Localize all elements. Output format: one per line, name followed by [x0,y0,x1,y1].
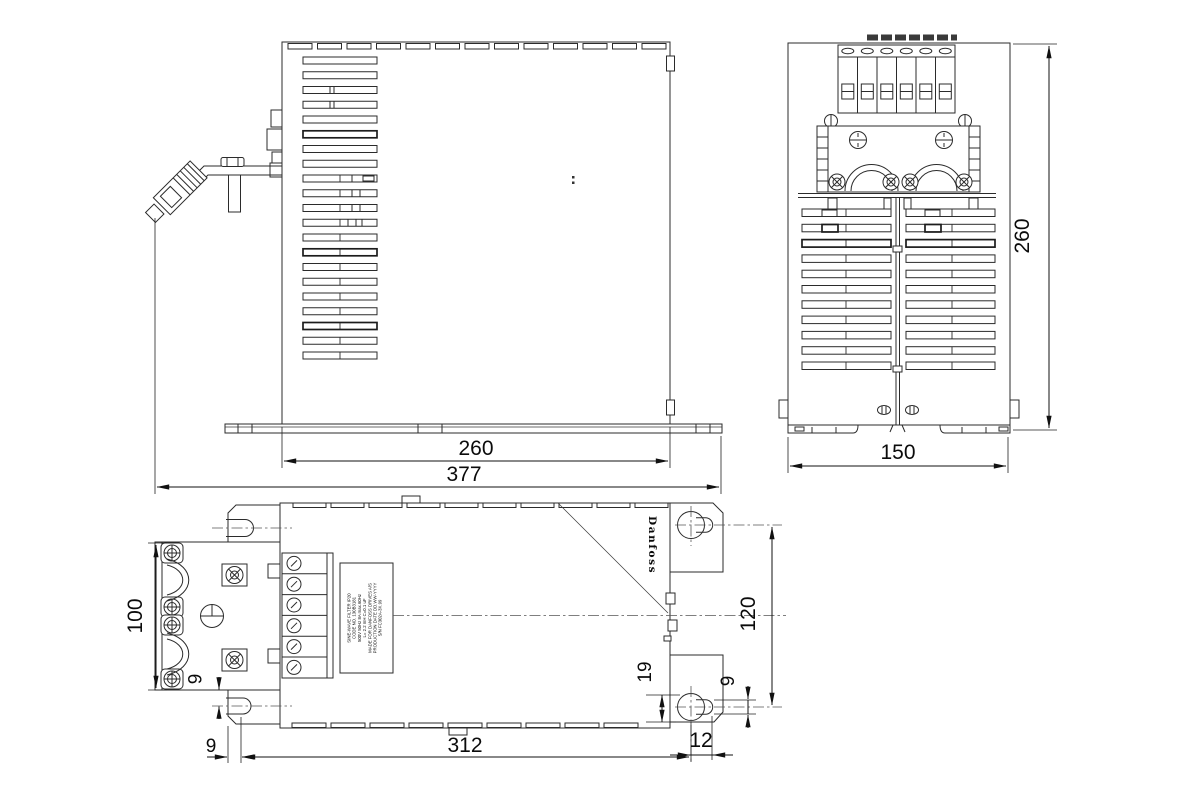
dim-top-mounting-span-label: 312 [447,734,482,757]
front-shelf [798,194,996,212]
mounting-tab-top-right [670,503,782,572]
side-enclosure-outline [282,42,670,424]
dim-top-keyhole-slot-length-label: 12 [689,729,712,752]
clamp-plate-top [155,542,280,690]
drawing-canvas: 260 377 [0,0,1200,800]
product-label: SINE-WAVE FILTER IP20 CODE NO. 130B3181 … [340,563,393,673]
dim-top-keyhole-to-edge-label: 19 [635,661,656,682]
dim-front-width-label: 150 [880,441,915,464]
side-vent-slots [303,57,377,359]
danfoss-logo-text: Danfoss [646,516,658,574]
technical-drawing: 260 377 [0,0,1200,800]
product-label-line-6: S/N FC302A-3X.99 [378,599,383,636]
bottom-edge-vent-dashes [292,723,638,728]
side-detail-mark [572,176,575,184]
clamp-plate [817,126,980,192]
dim-top-clamp-to-slot-label: 9 [186,674,207,685]
side-right-tab-top [667,56,675,71]
side-wall-brackets [267,110,282,177]
cable-gland [142,158,282,226]
terminal-block-front [838,45,955,113]
side-right-tab-bottom [667,400,675,415]
dim-top-slot-offset-label: 9 [206,736,217,757]
front-vent-slots-right [906,209,995,370]
base-plate [225,424,722,433]
terminal-block-top [282,553,333,678]
top-center-tab [402,496,420,503]
clamp-screw-bottom [222,649,247,671]
dim-side-box-width-label: 260 [458,437,493,460]
mounting-tab-bottom-right [670,655,782,764]
front-vent-slots-left [802,209,891,370]
dim-top-keyhole-span-label: 120 [737,596,760,631]
dim-front-height-label: 260 [1011,218,1034,253]
top-view: SINE-WAVE FILTER IP20 CODE NO. 130B3181 … [124,496,786,764]
dim-top-keyhole-slot-width-label: 9 [718,676,739,687]
center-screw [201,605,224,628]
front-view: 260 150 [779,38,1057,474]
front-center-split [893,198,902,426]
plate-screw-right [936,132,953,149]
clamp-screw-top [222,564,247,586]
side-top-vent-dashes [288,44,666,50]
dim-top-clamp-depth-label: 100 [124,598,147,633]
side-dimensions: 260 377 [155,218,721,494]
cable-lug [142,161,207,226]
side-view: 260 377 [142,42,722,494]
plate-screw-left [850,132,867,149]
top-edge-vent-dashes [293,503,668,508]
dim-side-overall-width-label: 377 [446,463,481,486]
gland-pin [229,175,241,212]
